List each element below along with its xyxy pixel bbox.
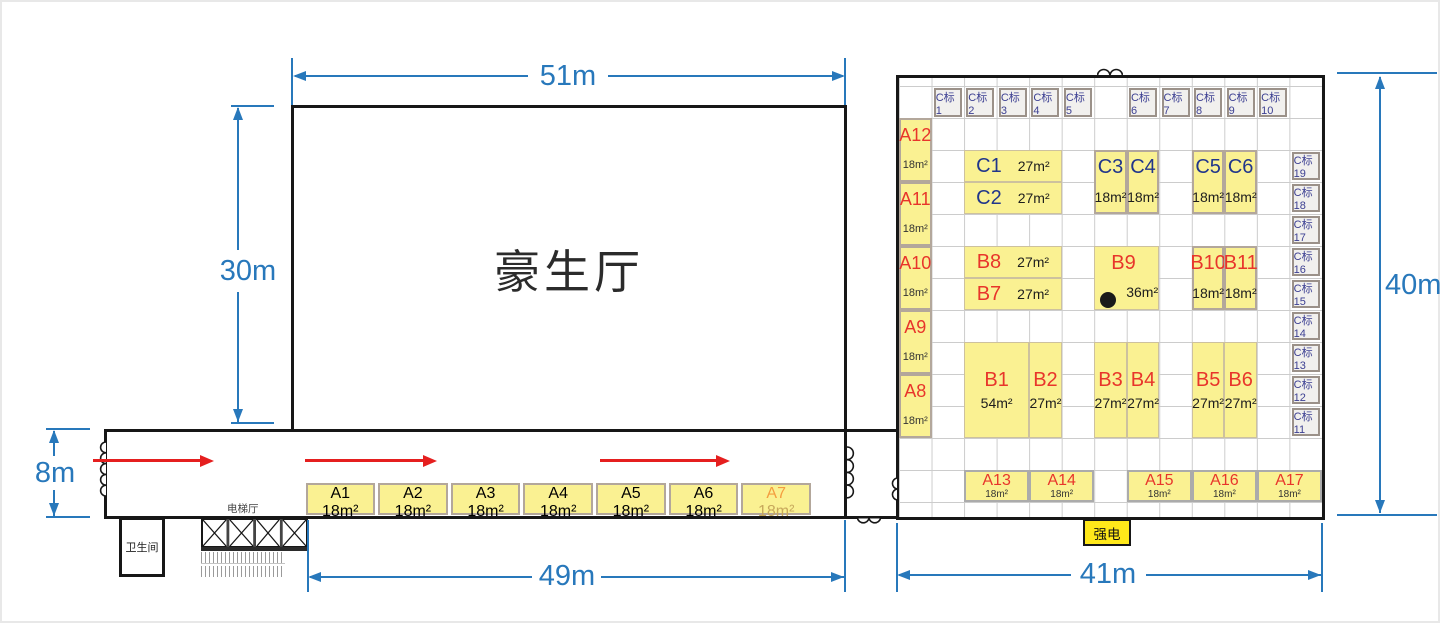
booth-label: A12 (901, 120, 930, 150)
dim-8m-text: 8m (28, 459, 82, 488)
booth-A3: A318m² (451, 483, 521, 515)
booth-area: 18m² (1194, 182, 1223, 212)
dim-40m-text: 40m (1385, 271, 1440, 300)
corridor-entrance-doors-icon (95, 441, 107, 498)
dim-41m-text: 41m (1072, 560, 1144, 589)
flow-arrow-2 (305, 459, 423, 462)
booth-label: C标6 (1131, 89, 1155, 117)
booth-Cstand7: C标7 (1162, 88, 1190, 117)
booth-Cstand16: C标16 (1292, 248, 1320, 276)
booth-B2: B227m² (1029, 342, 1062, 438)
dim-40m-line (1379, 77, 1381, 513)
booth-label: C标7 (1164, 89, 1188, 117)
booth-B1: B154m² (964, 342, 1029, 438)
booth-label: A3 (453, 485, 519, 503)
booth-area: 27m² (1127, 395, 1159, 411)
restroom-room: 卫生间 (119, 517, 165, 577)
dim-49m-arrow-right (831, 572, 844, 582)
booth-label: C标11 (1294, 408, 1318, 436)
booth-area: 18m² (525, 503, 591, 521)
dim-41m-arrow-left (897, 570, 910, 580)
booth-Cstand2: C标2 (966, 88, 994, 117)
restroom-label: 卫生间 (126, 539, 159, 555)
booth-C5: C518m² (1192, 150, 1225, 214)
booth-A1: A118m² (306, 483, 376, 515)
dim-51m-arrow-left (293, 71, 306, 81)
flow-arrow-1 (93, 459, 200, 462)
power-room: 强电 (1083, 519, 1131, 546)
booth-A9: A918m² (899, 310, 932, 374)
booth-label: C标18 (1294, 184, 1318, 212)
dim-51m-ext-left (291, 58, 293, 105)
booth-B8: B827m² (964, 246, 1062, 278)
booth-Cstand4: C标4 (1031, 88, 1059, 117)
dim-30m-line-b (237, 292, 239, 422)
b9-dot (1100, 292, 1116, 308)
booth-area: 18m² (380, 503, 446, 521)
booth-B9: B936m² (1094, 246, 1159, 310)
booth-area: 18m² (308, 503, 374, 521)
booth-area: 18m² (598, 503, 664, 521)
dim-40m-tick-top (1337, 72, 1437, 74)
booth-C1: C127m² (964, 150, 1062, 182)
booth-area: 18m² (985, 489, 1008, 500)
booth-B3: B327m² (1094, 342, 1127, 438)
booth-area: 18m² (1129, 182, 1158, 212)
booth-label: A8 (901, 376, 930, 406)
booth-area: 18m² (1148, 489, 1171, 500)
booth-Cstand18: C标18 (1292, 184, 1320, 212)
booth-area: 18m² (901, 278, 930, 308)
elevator-bank (201, 518, 308, 551)
booth-B10: B1018m² (1192, 246, 1225, 310)
booth-label: B10 (1194, 248, 1223, 278)
dim-49m-text: 49m (532, 562, 602, 591)
booth-area: 27m² (1018, 190, 1050, 206)
booth-label: C标2 (968, 89, 992, 117)
booth-label: C标10 (1261, 89, 1285, 117)
booth-C6: C618m² (1224, 150, 1257, 214)
dim-30m-text: 30m (213, 257, 283, 286)
booth-Cstand8: C标8 (1194, 88, 1222, 117)
dim-41m-line-b (1146, 574, 1321, 576)
booth-A17: A1718m² (1257, 470, 1322, 502)
booth-label: B3 (1098, 369, 1122, 392)
booth-label: B5 (1196, 369, 1220, 392)
booth-label: A9 (901, 312, 930, 342)
booth-area: 27m² (1095, 395, 1127, 411)
booth-label: C1 (976, 155, 1002, 178)
booth-Cstand12: C标12 (1292, 376, 1320, 404)
dim-41m-ext-right (1321, 523, 1323, 592)
dim-41m-arrow-right (1308, 570, 1321, 580)
booth-area: 36m² (1126, 284, 1158, 300)
right-building-top-door-icon (1097, 59, 1123, 76)
booth-Cstand14: C标14 (1292, 312, 1320, 340)
booth-A13: A1318m² (964, 470, 1029, 502)
booth-area: 27m² (1225, 395, 1257, 411)
booth-Cstand15: C标15 (1292, 280, 1320, 308)
booth-area: 18m² (453, 503, 519, 521)
booth-label: C标16 (1294, 248, 1318, 276)
flow-arrow-3 (600, 459, 716, 462)
booth-label: A1 (308, 485, 374, 503)
booth-label: C标1 (936, 89, 960, 117)
booth-Cstand5: C标5 (1064, 88, 1092, 117)
booth-label: A7 (743, 485, 809, 503)
booth-label: B8 (977, 251, 1001, 274)
booth-B5: B527m² (1192, 342, 1225, 438)
dim-41m-ext-left (896, 523, 898, 592)
booth-A14: A1418m² (1029, 470, 1094, 502)
booth-label: A6 (671, 485, 737, 503)
booth-label: A14 (1047, 472, 1075, 490)
floor-plan-canvas: 豪生厅 卫生间 电梯厅 (0, 0, 1440, 623)
booth-Cstand6: C标6 (1129, 88, 1157, 117)
booth-label: B9 (1111, 252, 1135, 275)
booth-area: 18m² (901, 342, 930, 372)
dim-8m-arrow-up (49, 430, 59, 443)
booth-label: C5 (1194, 152, 1223, 182)
booth-label: B11 (1226, 248, 1255, 278)
booth-C4: C418m² (1127, 150, 1160, 214)
booth-label: A4 (525, 485, 591, 503)
booth-label: A15 (1145, 472, 1173, 490)
booth-Cstand9: C标9 (1227, 88, 1255, 117)
dim-51m-text: 51m (528, 62, 608, 91)
booth-A16: A1618m² (1192, 470, 1257, 502)
booth-C2: C227m² (964, 182, 1062, 214)
booth-label: B4 (1131, 369, 1155, 392)
booth-area: 18m² (1278, 489, 1301, 500)
booth-label: C2 (976, 187, 1002, 210)
booth-label: A11 (901, 184, 930, 214)
booth-label: B6 (1228, 369, 1252, 392)
booth-area: 27m² (1017, 254, 1049, 270)
booth-area: 18m² (901, 150, 930, 180)
booth-label: C3 (1096, 152, 1125, 182)
dim-51m-ext-right (844, 58, 846, 105)
booth-A8: A818m² (899, 374, 932, 438)
booth-area: 18m² (1226, 182, 1255, 212)
booth-A12: A1218m² (899, 118, 932, 182)
booth-label: C标3 (1001, 89, 1025, 117)
booth-A10: A1018m² (899, 246, 932, 310)
booth-area: 27m² (1018, 158, 1050, 174)
dim-40m-arrow-down (1375, 500, 1385, 513)
flow-arrow-2-head (423, 455, 437, 467)
passage-left-doors-icon (846, 446, 858, 500)
booth-Cstand1: C标1 (934, 88, 962, 117)
booth-area: 18m² (901, 406, 930, 436)
booth-Cstand11: C标11 (1292, 408, 1320, 436)
dim-30m-arrow-up (233, 107, 243, 120)
booth-label: C标5 (1066, 89, 1090, 117)
booth-label: C标9 (1229, 89, 1253, 117)
dim-30m-tick-bottom (231, 422, 274, 424)
booth-area: 18m² (1226, 278, 1255, 308)
booth-A7: A718m² (741, 483, 811, 515)
dim-30m-arrow-down (233, 409, 243, 422)
dim-51m-arrow-right (832, 71, 845, 81)
booth-Cstand19: C标19 (1292, 152, 1320, 180)
booth-label: A5 (598, 485, 664, 503)
booth-A2: A218m² (378, 483, 448, 515)
booth-label: B7 (977, 283, 1001, 306)
booth-A6: A618m² (669, 483, 739, 515)
booth-label: A17 (1275, 472, 1303, 490)
power-label: 强电 (1094, 523, 1121, 543)
dim-41m-line-a (899, 574, 1071, 576)
booth-label: C4 (1129, 152, 1158, 182)
booth-area: 18m² (671, 503, 737, 521)
booth-C3: C318m² (1094, 150, 1127, 214)
booth-label: A10 (901, 248, 930, 278)
booth-B11: B1118m² (1224, 246, 1257, 310)
dim-49m-ext-right (844, 520, 846, 592)
booth-label: C标14 (1294, 312, 1318, 340)
booth-label: C标8 (1196, 89, 1220, 117)
dim-51m-line-a (295, 75, 528, 77)
booth-Cstand17: C标17 (1292, 216, 1320, 244)
booth-label: C标19 (1294, 152, 1318, 180)
dim-49m-line-a (310, 576, 532, 578)
booth-label: A16 (1210, 472, 1238, 490)
booth-B7: B727m² (964, 278, 1062, 310)
booth-label: C标13 (1294, 344, 1318, 372)
dim-8m-arrow-down (49, 503, 59, 516)
dim-30m-line-a (237, 108, 239, 250)
booth-A11: A1118m² (899, 182, 932, 246)
booth-label: C标15 (1294, 280, 1318, 308)
dim-8m-tick-bottom (46, 516, 90, 518)
booth-Cstand10: C标10 (1259, 88, 1287, 117)
booth-label: C标17 (1294, 216, 1318, 244)
booth-area: 18m² (1096, 182, 1125, 212)
booth-area: 27m² (1017, 286, 1049, 302)
passage-right-door-icon (886, 477, 898, 501)
booth-area: 27m² (1029, 395, 1061, 411)
booth-A15: A1518m² (1127, 470, 1192, 502)
booth-label: B1 (984, 369, 1008, 392)
booth-B6: B627m² (1224, 342, 1257, 438)
elevator-hall-label: 电梯厅 (227, 501, 259, 516)
booth-area: 18m² (1194, 278, 1223, 308)
dim-51m-line-b (608, 75, 843, 77)
booth-label: C标4 (1033, 89, 1057, 117)
booth-label: A2 (380, 485, 446, 503)
booth-B4: B427m² (1127, 342, 1160, 438)
dim-40m-tick-bottom (1337, 514, 1437, 516)
booth-Cstand3: C标3 (999, 88, 1027, 117)
dim-40m-arrow-up (1375, 76, 1385, 89)
passage-bottom-door-icon (857, 518, 881, 530)
booth-area: 54m² (981, 395, 1013, 411)
booth-label: A13 (982, 472, 1010, 490)
flow-arrow-3-head (716, 455, 730, 467)
stairs (201, 552, 285, 577)
flow-arrow-1-head (200, 455, 214, 467)
booth-Cstand13: C标13 (1292, 344, 1320, 372)
booth-area: 27m² (1192, 395, 1224, 411)
booth-area: 18m² (743, 503, 809, 521)
booth-A5: A518m² (596, 483, 666, 515)
dim-49m-line-b (601, 576, 844, 578)
booth-A4: A418m² (523, 483, 593, 515)
booth-label: C6 (1226, 152, 1255, 182)
booth-label: B2 (1033, 369, 1057, 392)
booth-area: 18m² (901, 214, 930, 244)
booth-area: 18m² (1213, 489, 1236, 500)
booth-label: C标12 (1294, 376, 1318, 404)
dim-49m-arrow-left (308, 572, 321, 582)
hall-name: 豪生厅 (291, 105, 847, 432)
booth-area: 18m² (1050, 489, 1073, 500)
passage-top-wall (847, 429, 896, 432)
